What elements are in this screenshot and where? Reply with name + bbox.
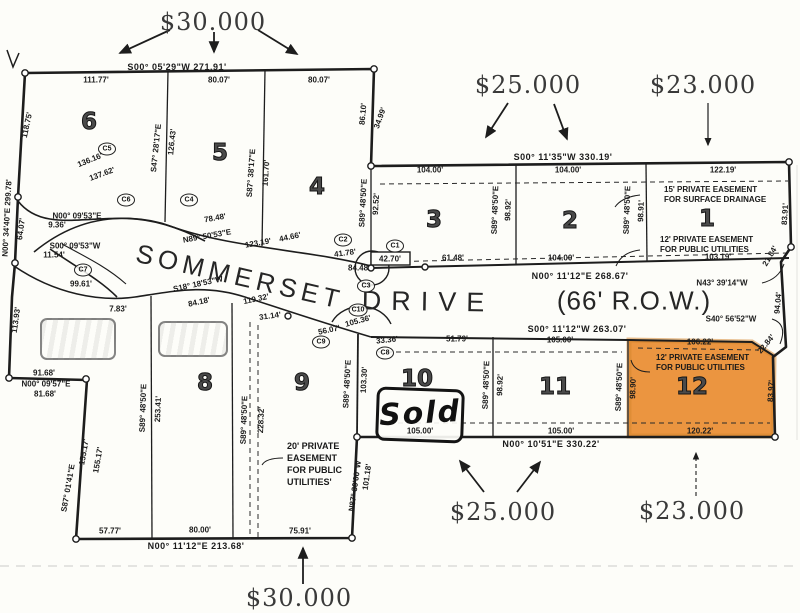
- price-bottom-23000: $23.000: [639, 497, 745, 525]
- lot-number-1: 1: [699, 206, 715, 232]
- dim-label: 75.91': [289, 527, 311, 536]
- curve-label-C9: C9: [312, 336, 330, 349]
- curve-label-C8: C8: [376, 347, 394, 360]
- dim-label: 11.54': [43, 251, 64, 260]
- dim-label: 92.52': [371, 193, 381, 215]
- lot-number-5: 5: [212, 140, 228, 166]
- street-row-label: (66' R.O.W.): [557, 286, 711, 317]
- dim-label: S00° 09'53"W: [50, 242, 101, 251]
- curve-label-C6: C6: [117, 194, 135, 207]
- dim-label: 51.79': [446, 335, 468, 344]
- dim-label: N00° 09'53"E: [53, 212, 102, 221]
- lot-number-12: 12: [676, 374, 708, 400]
- dim-label: S89° 48'50"E: [481, 361, 492, 410]
- dim-label: 98.90': [628, 377, 638, 399]
- street-name-drive: DRIVE: [361, 285, 494, 318]
- lot-number-11: 11: [539, 374, 571, 400]
- easement-note-surface-drainage: 15' PRIVATE EASEMENT FOR SURFACE DRAINAG…: [664, 185, 766, 205]
- price-top-25000: $25.000: [475, 71, 581, 99]
- dim-label: 83.97': [766, 380, 776, 402]
- price-bottom-25000: $25.000: [450, 498, 556, 526]
- dim-label: S89° 48'50"E: [622, 186, 633, 235]
- dim-label: 122.19': [710, 166, 736, 175]
- lot-number-2: 2: [562, 208, 578, 234]
- dim-label: 42.70': [379, 255, 401, 264]
- dim-label: 80.07': [208, 76, 230, 85]
- dim-label: 98.92': [495, 374, 505, 396]
- curve-label-C4: C4: [180, 194, 198, 207]
- dim-label: N43° 39'14"W: [696, 279, 747, 288]
- dim-label: S00° 05'29"W 271.91': [127, 62, 226, 72]
- erased-sold-box: [40, 318, 116, 360]
- dim-label: 81.68': [34, 390, 56, 399]
- dim-label: S40° 56'52"W: [706, 315, 757, 324]
- curve-label-C2: C2: [334, 234, 352, 247]
- dim-label: 80.00': [189, 526, 211, 535]
- dim-label: S89° 48'50"E: [239, 396, 250, 445]
- dim-label: S00° 11'12"W 263.07': [528, 324, 627, 334]
- dim-label: 111.77': [83, 76, 109, 85]
- dim-label: 98.91': [636, 200, 646, 222]
- erased-sold-box: [158, 321, 228, 357]
- dim-label: 99.61': [70, 280, 92, 289]
- dim-label: N00° 10'51"E 330.22': [502, 439, 599, 449]
- curve-label-C3: C3: [357, 280, 375, 293]
- price-top-23000: $23.000: [650, 71, 756, 99]
- dim-label: 57.77': [99, 527, 121, 536]
- dim-label: 120.22': [687, 427, 713, 436]
- dim-label: 9.36': [48, 221, 65, 230]
- dim-label: S89° 48'50"E: [490, 186, 501, 235]
- curve-label-C1: C1: [386, 240, 404, 253]
- dim-label: S00° 11'35"W 330.19': [514, 152, 613, 162]
- dim-label: S89° 48'50"E: [138, 384, 149, 433]
- lot-number-6: 6: [81, 109, 97, 135]
- dim-label: 98.92': [503, 199, 513, 221]
- dim-label: 253.41': [153, 396, 163, 423]
- lot-number-8: 8: [197, 370, 213, 396]
- price-bottom-30000: $30.000: [246, 584, 352, 612]
- dim-label: 105.00': [548, 427, 574, 436]
- dim-label: 103.19': [705, 253, 731, 262]
- dim-label: 161.70': [261, 160, 272, 187]
- lot-number-9: 9: [294, 370, 310, 396]
- lot-number-3: 3: [426, 207, 442, 233]
- dim-label: 105.00': [407, 427, 433, 436]
- dim-label: 94.04': [773, 292, 784, 315]
- dim-label: 103.30': [359, 367, 369, 394]
- dim-label: 61.48': [442, 254, 464, 263]
- dim-label: 80.07': [308, 76, 330, 85]
- curve-label-C7: C7: [74, 264, 92, 277]
- dim-label: 86.10': [358, 103, 369, 126]
- dim-label: 106.22': [687, 338, 713, 347]
- easement-note-public-utilities-sw: 20' PRIVATE EASEMENT FOR PUBLIC UTILITIE…: [287, 440, 342, 488]
- lot-number-10: 10: [401, 366, 433, 392]
- dim-label: 84.48': [348, 264, 370, 273]
- plat-map: Sold $30.000 $25.000 $23.000 $25.000 $23…: [0, 0, 800, 613]
- dim-label: 104.00': [417, 166, 443, 175]
- dim-label: 104.00': [548, 254, 574, 263]
- price-top-30000: $30.000: [160, 8, 266, 36]
- dim-label: 91.68': [33, 369, 55, 378]
- dim-label: 228.32': [256, 407, 266, 434]
- dim-label: N00° 11'12"E 213.68': [148, 541, 245, 551]
- lot-number-4: 4: [309, 174, 325, 200]
- dim-label: 105.00': [547, 336, 573, 345]
- dim-label: 83.91': [780, 203, 790, 225]
- dim-label: 104.00': [555, 166, 581, 175]
- dim-label: N00° 09'57"E: [22, 380, 71, 389]
- dim-label: 7.83': [109, 305, 126, 314]
- easement-note-public-utilities-lot12: 12' PRIVATE EASEMENT FOR PUBLIC UTILITIE…: [656, 353, 749, 373]
- dim-label: S89° 48'50"E: [614, 363, 625, 412]
- dim-label: N00° 11'12"E 268.67': [532, 271, 629, 281]
